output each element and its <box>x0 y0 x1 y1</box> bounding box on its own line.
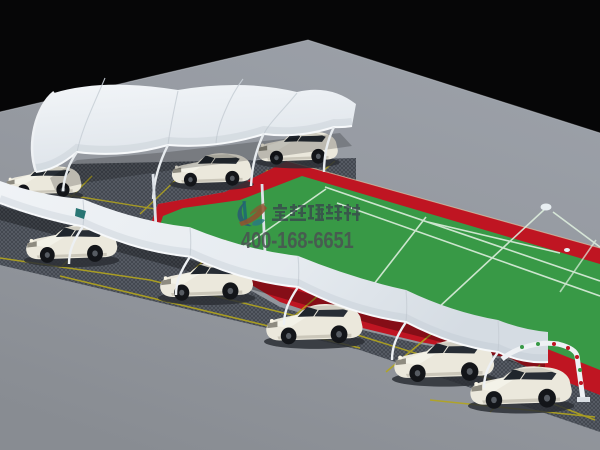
svg-text:400-168-6651: 400-168-6651 <box>241 228 354 253</box>
